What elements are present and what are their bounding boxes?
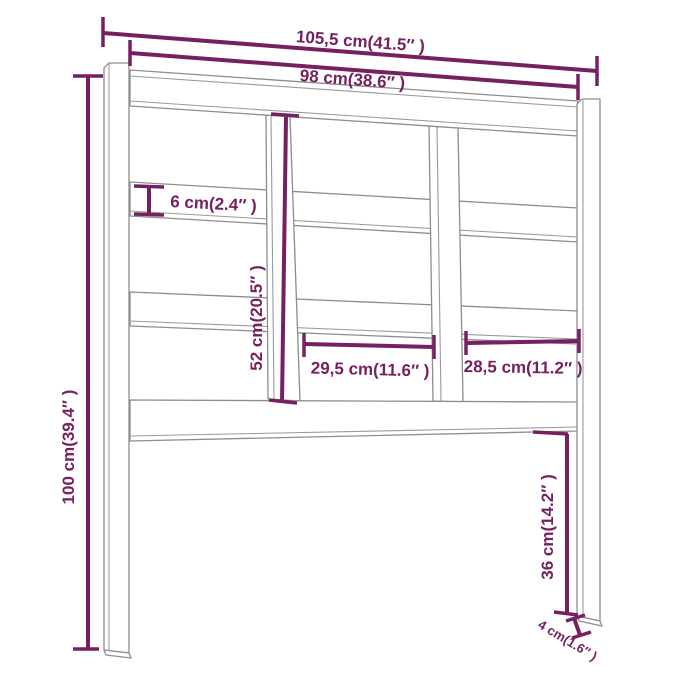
headboard-dimension-diagram: 105,5 cm(41.5″ ) 98 cm(38.6″ ) 100 cm(39… [0, 0, 700, 700]
diagram-canvas: 105,5 cm(41.5″ ) 98 cm(38.6″ ) 100 cm(39… [0, 0, 700, 700]
left-leg-post [104, 63, 131, 658]
bottom-rail [130, 400, 578, 441]
dimension-middle-opening: 29,5 cm(11.6″ ) [304, 333, 434, 381]
dimension-leg-height: 36 cm(14.2″ ) [533, 432, 578, 615]
right-opening-label: 28,5 cm(11.2″ ) [464, 357, 583, 378]
vertical-divider-2 [429, 126, 463, 402]
dimension-overall-height: 100 cm(39.4″ ) [59, 76, 103, 649]
leg-height-label: 36 cm(14.2″ ) [538, 474, 557, 579]
slat-row-2 [130, 292, 578, 344]
overall-height-label: 100 cm(39.4″ ) [59, 390, 78, 505]
panel-height-label: 52 cm(20.5″ ) [247, 265, 266, 370]
middle-opening-label: 29,5 cm(11.6″ ) [311, 358, 430, 380]
